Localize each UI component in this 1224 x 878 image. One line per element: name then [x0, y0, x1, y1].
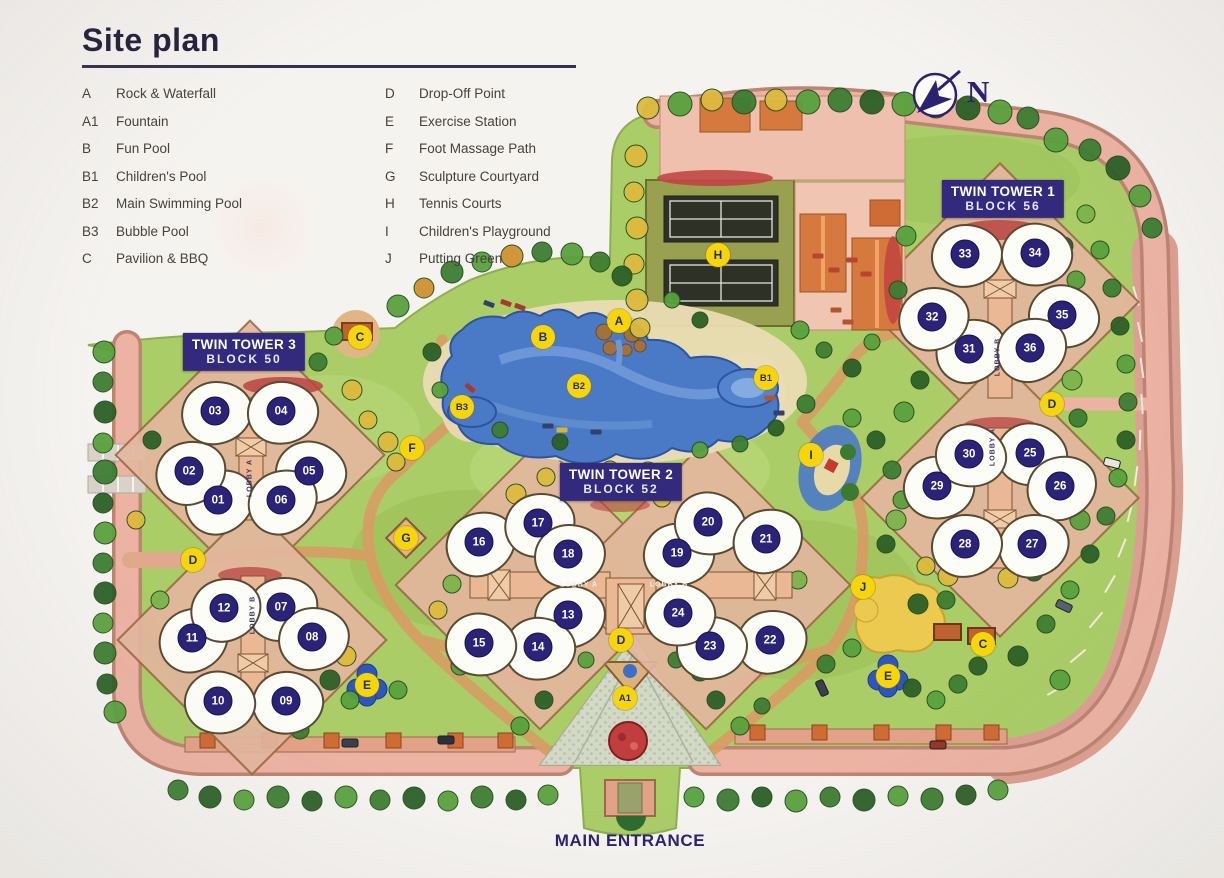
legend-label: Foot Massage Path: [419, 141, 536, 156]
legend-label: Children's Playground: [419, 224, 551, 239]
legend-code: H: [385, 196, 415, 211]
legend-label: Bubble Pool: [116, 224, 189, 239]
site-plan-page: LOBBY ALOBBY BLOBBY ALOBBY BLOBBY BLOBBY…: [0, 0, 1224, 878]
legend-label: Tennis Courts: [419, 196, 502, 211]
legend-code: F: [385, 141, 415, 156]
legend-code: B1: [82, 169, 112, 184]
legend-code: A1: [82, 114, 112, 129]
legend-label: Main Swimming Pool: [116, 196, 242, 211]
site-plan-artwork: [0, 0, 1224, 878]
legend-code: B3: [82, 224, 112, 239]
compass-icon: [905, 66, 965, 124]
legend-code: G: [385, 169, 415, 184]
main-entrance-label: MAIN ENTRANCE: [555, 831, 705, 851]
page-title: Site plan: [82, 22, 220, 59]
legend-label: Children's Pool: [116, 169, 206, 184]
legend-label: Rock & Waterfall: [116, 86, 216, 101]
north-letter: N: [967, 74, 989, 110]
legend-label: Sculpture Courtyard: [419, 169, 539, 184]
legend-label: Putting Green: [419, 251, 502, 266]
legend-code: I: [385, 224, 415, 239]
legend-code: B2: [82, 196, 112, 211]
legend-code: B: [82, 141, 112, 156]
title-rule: [82, 65, 576, 68]
legend-label: Pavilion & BBQ: [116, 251, 208, 266]
legend-code: D: [385, 86, 415, 101]
pool-complex: [423, 300, 807, 464]
legend-label: Fountain: [116, 114, 169, 129]
legend-label: Drop-Off Point: [419, 86, 505, 101]
legend-label: Exercise Station: [419, 114, 517, 129]
legend-code: J: [385, 251, 415, 266]
legend-code: C: [82, 251, 112, 266]
north-indicator: N: [905, 66, 1025, 128]
legend-label: Fun Pool: [116, 141, 170, 156]
legend-code: A: [82, 86, 112, 101]
legend-code: E: [385, 114, 415, 129]
